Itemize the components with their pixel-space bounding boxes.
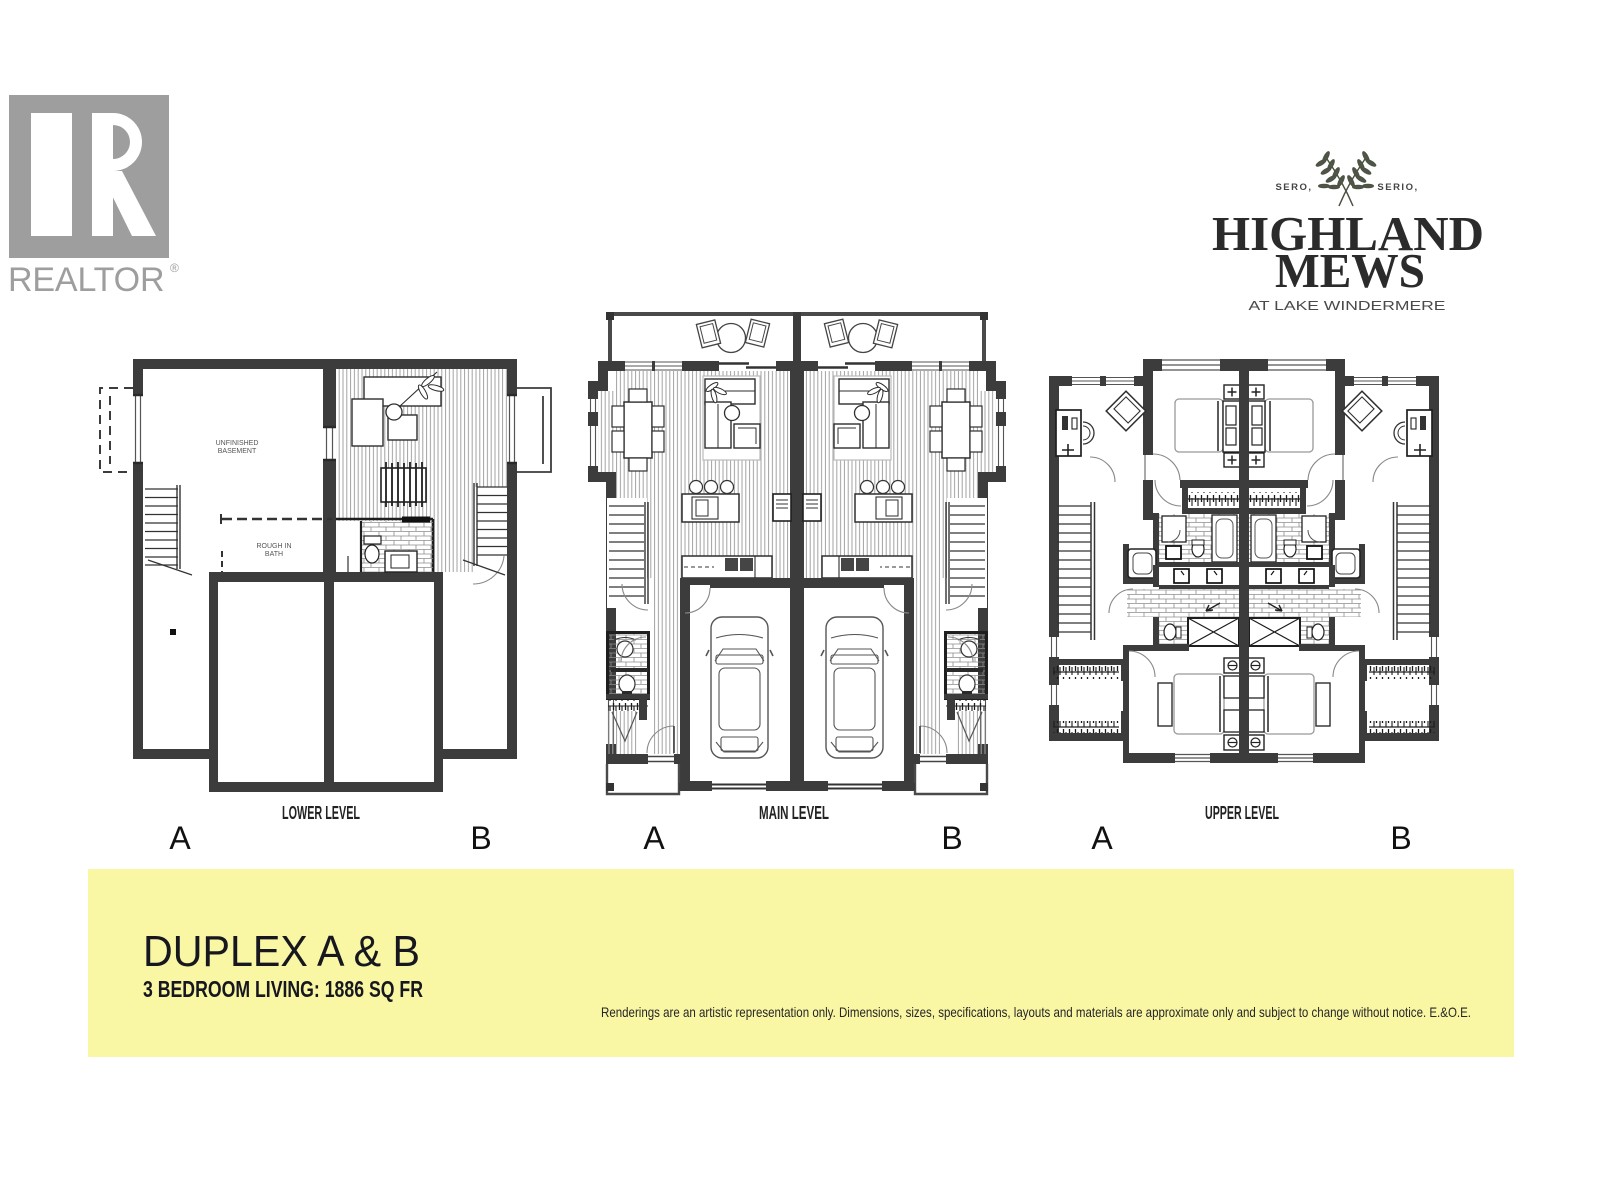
svg-text:SERIO,: SERIO, <box>1377 182 1418 193</box>
svg-text:ROUGH IN: ROUGH IN <box>257 543 292 550</box>
svg-text:3 BEDROOM LIVING: 1886 SQ FR: 3 BEDROOM LIVING: 1886 SQ FR <box>143 976 423 1002</box>
svg-text:DUPLEX A & B: DUPLEX A & B <box>143 927 420 976</box>
svg-text:AT LAKE WINDERMERE: AT LAKE WINDERMERE <box>1249 299 1446 313</box>
svg-text:®: ® <box>170 261 179 275</box>
svg-text:Renderings are an artistic rep: Renderings are an artistic representatio… <box>601 1004 1471 1020</box>
svg-text:MEWS: MEWS <box>1275 243 1425 298</box>
svg-text:REALTOR: REALTOR <box>8 261 166 299</box>
svg-text:UPPER LEVEL: UPPER LEVEL <box>1205 803 1279 823</box>
svg-text:A: A <box>643 820 665 856</box>
svg-text:BASEMENT: BASEMENT <box>218 448 257 455</box>
svg-text:LOWER LEVEL: LOWER LEVEL <box>282 803 360 823</box>
svg-text:SERO,: SERO, <box>1275 182 1312 193</box>
svg-text:B: B <box>941 820 962 856</box>
svg-text:A: A <box>169 820 191 856</box>
svg-text:MAIN LEVEL: MAIN LEVEL <box>759 803 829 823</box>
svg-text:A: A <box>1091 820 1113 856</box>
svg-text:B: B <box>470 820 491 856</box>
svg-text:B: B <box>1390 820 1411 856</box>
svg-text:UNFINISHED: UNFINISHED <box>216 440 259 447</box>
svg-text:BATH: BATH <box>265 551 283 558</box>
